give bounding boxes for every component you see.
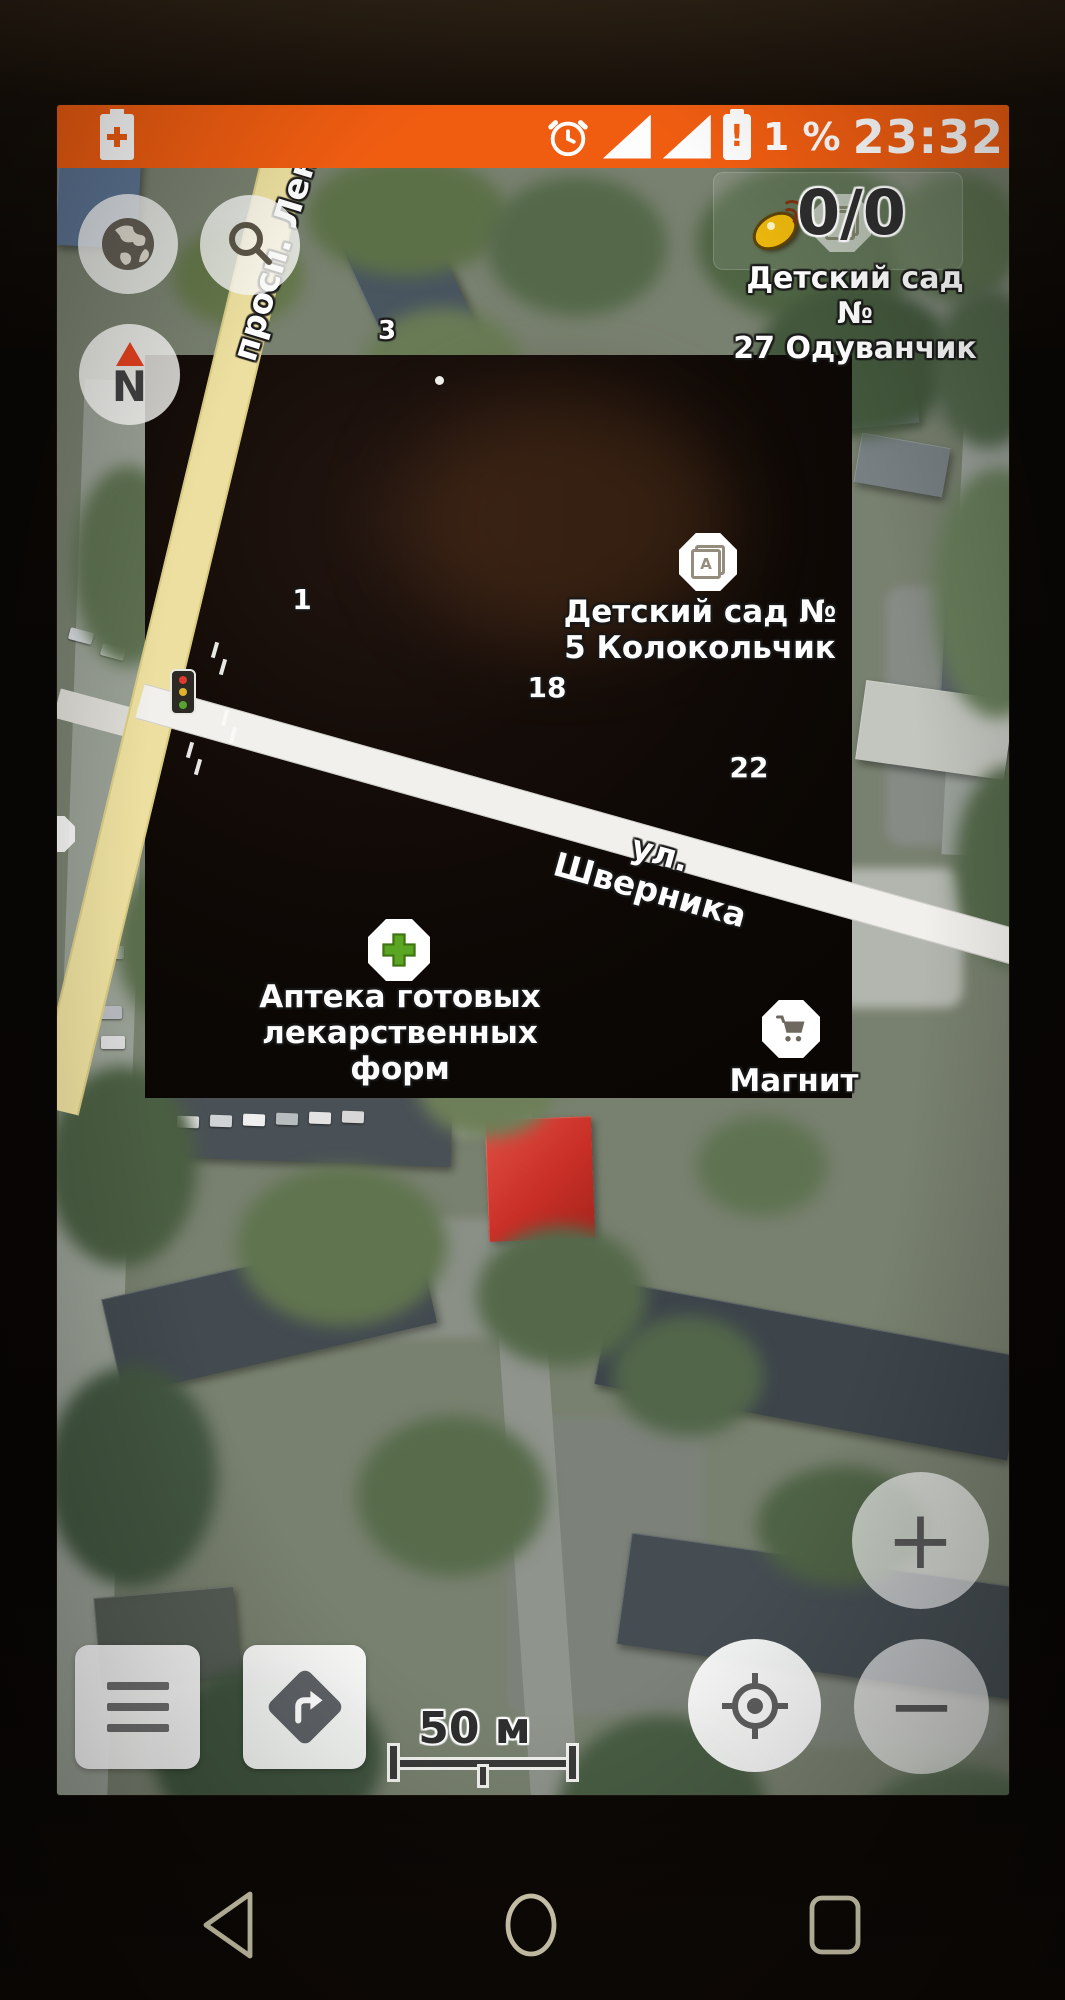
crosshair-icon — [722, 1673, 788, 1739]
car — [243, 1114, 265, 1127]
nav-recents-button[interactable] — [806, 1892, 864, 1958]
nav-home-button[interactable] — [502, 1886, 560, 1964]
tree-blob — [307, 168, 507, 276]
house-number-22: 22 — [727, 752, 771, 784]
recents-square-icon — [812, 1898, 858, 1952]
signal-icon — [603, 115, 651, 159]
compass-button[interactable]: N — [79, 324, 180, 425]
kindergarten27-line1: Детский сад № — [725, 262, 985, 332]
car — [276, 1113, 298, 1126]
pharmacy-line1: Аптека готовых — [220, 980, 580, 1016]
battery-saver-icon — [100, 114, 134, 160]
turn-right-arrow-icon — [278, 1680, 332, 1734]
car — [210, 1115, 232, 1128]
map-dot — [435, 376, 444, 385]
search-icon — [221, 216, 279, 274]
car — [309, 1112, 331, 1125]
green-cross-icon — [379, 930, 419, 970]
back-triangle-icon — [206, 1894, 250, 1956]
traffic-light-icon — [170, 669, 196, 715]
kindergarten27-label: Детский сад № 27 Одуванчик — [725, 262, 985, 366]
magnit-label: Магнит — [704, 1064, 884, 1100]
magnit-icon[interactable] — [762, 1000, 820, 1058]
layers-globe-button[interactable] — [78, 194, 178, 294]
zoom-out-button[interactable]: − — [854, 1639, 989, 1774]
gps-satellite-counter: 0/0 — [797, 176, 906, 249]
tree-blob — [487, 176, 667, 316]
nav-back-button[interactable] — [196, 1888, 258, 1962]
kindergarten5-label: Детский сад № 5 Колокольчик — [550, 595, 850, 667]
clock: 23:32 — [853, 110, 1004, 164]
car — [342, 1111, 364, 1124]
directions-button[interactable] — [243, 1645, 366, 1769]
zoom-in-button[interactable]: + — [852, 1472, 989, 1609]
tree-blob — [237, 1166, 447, 1326]
toy-cube-icon: А — [691, 545, 725, 579]
house-number-18: 18 — [525, 672, 569, 704]
home-circle-icon — [508, 1896, 554, 1954]
map-canvas[interactable]: просп. Лен 3 1 18 22 ул. Шверника А Детс… — [57, 168, 1009, 1795]
kindergarten5-line2: 5 Колокольчик — [550, 631, 850, 667]
alarm-icon — [545, 114, 591, 160]
globe-icon — [99, 215, 157, 273]
building-roof — [853, 433, 950, 498]
shopping-cart-icon — [773, 1011, 809, 1047]
kindergarten5-icon[interactable]: А — [679, 533, 737, 591]
car — [101, 1036, 125, 1049]
compass-n-label: N — [112, 366, 147, 408]
battery-percent: 1 % — [763, 115, 841, 159]
my-location-button[interactable] — [688, 1639, 821, 1772]
tree-blob — [613, 1316, 763, 1436]
tree-blob — [357, 1416, 547, 1576]
pharmacy-label: Аптека готовых лекарственных форм — [220, 980, 580, 1088]
hamburger-icon — [107, 1682, 169, 1732]
phone-screen: ! 1 % 23:32 — [57, 105, 1009, 1795]
tree-blob — [57, 1366, 217, 1586]
status-bar[interactable]: ! 1 % 23:32 — [57, 105, 1009, 168]
search-button[interactable] — [200, 195, 300, 295]
battery-alert-icon: ! — [723, 114, 751, 160]
menu-button[interactable] — [75, 1645, 200, 1769]
scale-label: 50 м — [387, 1703, 562, 1754]
kindergarten27-line2: 27 Одуванчик — [725, 332, 985, 367]
kindergarten5-line1: Детский сад № — [550, 595, 850, 631]
pharmacy-icon[interactable] — [368, 919, 430, 981]
house-number-1: 1 — [290, 584, 314, 616]
house-number-3: 3 — [375, 316, 399, 346]
pharmacy-line2: лекарственных форм — [220, 1016, 580, 1088]
signal-icon-2 — [663, 115, 711, 159]
tree-blob — [697, 1116, 827, 1216]
tree-blob — [477, 1226, 647, 1366]
battery-alert-mark: ! — [730, 122, 744, 152]
